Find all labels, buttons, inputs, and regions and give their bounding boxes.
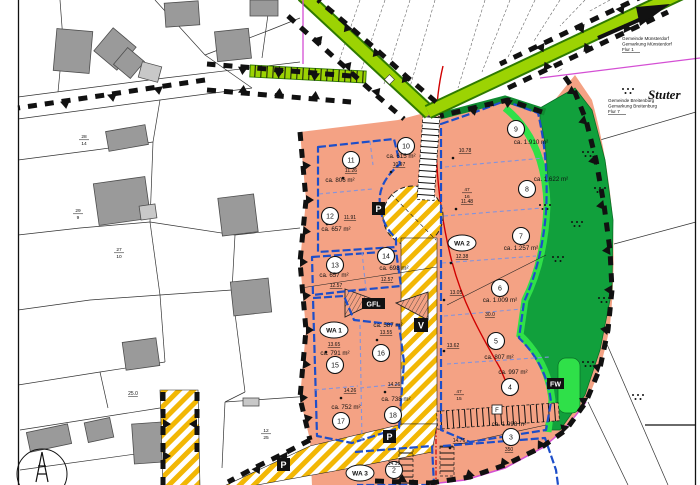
parking-sign: P (280, 460, 286, 470)
lot-area: ca. 1.910 m² (514, 139, 548, 146)
parcel-no: 27 (116, 247, 122, 253)
lot-number: 2 (392, 467, 396, 474)
parcel-no: 15 (456, 396, 462, 402)
lot-area: ca. 1.009 m² (483, 297, 517, 304)
parcel-no: 28 (81, 134, 87, 140)
dim: 25.0 (128, 391, 138, 397)
lot-area: ca. 698 m² (379, 265, 408, 272)
zone-label-wa1: WA 1 (326, 327, 342, 334)
lot-number: 15 (331, 362, 339, 369)
lot-number: 6 (498, 285, 502, 292)
site-plan-screenshot: 2 3ca. 1.098 m² 4ca. 997 m² 5ca. 807 m² … (0, 0, 700, 485)
dim: 350 (505, 447, 514, 453)
parcel-no: 47 (464, 187, 470, 193)
parcel-no: 25 (263, 435, 269, 441)
lot-area: ca. 657 m² (321, 226, 350, 233)
dim: 12.57 (330, 283, 343, 289)
v-sign: V (418, 321, 424, 331)
parcel-no: 47 (456, 389, 462, 395)
dim: 10.78 (459, 148, 472, 154)
lot-number: 13 (331, 262, 339, 269)
dim: 30.0 (485, 312, 495, 318)
lot-area: ca. 1.257 m² (504, 245, 538, 252)
parcel-no: 10 (116, 254, 122, 260)
lot-number: 9 (514, 126, 518, 133)
lot-number: 18 (389, 412, 397, 419)
lot-area: ca. 587 m² (373, 322, 402, 329)
lot-number: 7 (519, 233, 523, 240)
parcel-no: 29 (75, 208, 81, 214)
lot-area: ca. 1.622 m² (534, 176, 568, 183)
municipality-note-line: Flur 7 (608, 109, 620, 114)
dim: 14.26 (344, 388, 357, 394)
lot-number: 17 (337, 418, 345, 425)
lot-number: 16 (377, 350, 385, 357)
gfl-sign: GFL (367, 302, 382, 309)
parcel-no: 14 (81, 141, 87, 147)
municipality-note-line: Gemeinde Münsterdorf (622, 36, 670, 41)
place-name-label: Stuter (648, 87, 681, 102)
parking-sign: P (375, 204, 381, 214)
dim: 13.65 (328, 342, 341, 348)
dim: 12.57 (381, 277, 394, 283)
zone-label-wa2: WA 2 (454, 240, 470, 247)
lot-area: ca. 807 m² (484, 354, 513, 361)
dim: 13.55 (380, 330, 393, 336)
parcel-no: 16 (464, 194, 470, 200)
lot-area: ca. 806 m² (325, 177, 354, 184)
dim: 12.38 (456, 254, 469, 260)
dim: 14.76 (453, 438, 466, 444)
dim: 11.91 (344, 215, 356, 221)
lot-area: ca. 1.098 m² (492, 421, 526, 428)
dim: 14.26 (388, 382, 401, 388)
parking-sign: P (386, 432, 392, 442)
lot-area: ca. 738 m² (381, 396, 410, 403)
lot-number: 4 (508, 384, 512, 391)
municipality-note-line: Gemarkung Münsterdorf (622, 42, 673, 47)
municipality-note-line: Gemarkung Breitenburg (608, 104, 657, 109)
lot-number: 3 (509, 434, 513, 441)
parcel-no: 9 (77, 215, 80, 221)
lot-area: ca. 615 m² (386, 153, 415, 160)
lot-number: 11 (347, 157, 354, 164)
lot-area: ca. 752 m² (331, 404, 360, 411)
lot-area: ca. 791 m² (320, 350, 349, 357)
site-plan-map: 2 3ca. 1.098 m² 4ca. 997 m² 5ca. 807 m² … (0, 0, 700, 485)
dim: 11.26 (345, 168, 357, 174)
dim: 13.05 (450, 290, 463, 296)
lot-number: 8 (525, 186, 529, 193)
dim: 13.62 (447, 343, 460, 349)
lot-number: 5 (494, 338, 498, 345)
f-sign: F (495, 408, 499, 414)
lot-number: 10 (402, 143, 410, 150)
fw-sign: FW (550, 382, 561, 389)
lot-area: ca. 997 m² (498, 369, 527, 376)
parcel-no: 12 (263, 428, 269, 434)
dim: 10.97 (393, 162, 406, 168)
municipality-note-line: Flur 1 (622, 47, 634, 52)
lot-number: 14 (382, 253, 390, 260)
lot-number: 12 (326, 213, 334, 220)
lot-area: ca. 657 m² (319, 272, 348, 279)
zone-label-wa3: WA 3 (352, 470, 368, 477)
dim: 14.39 (388, 461, 401, 467)
